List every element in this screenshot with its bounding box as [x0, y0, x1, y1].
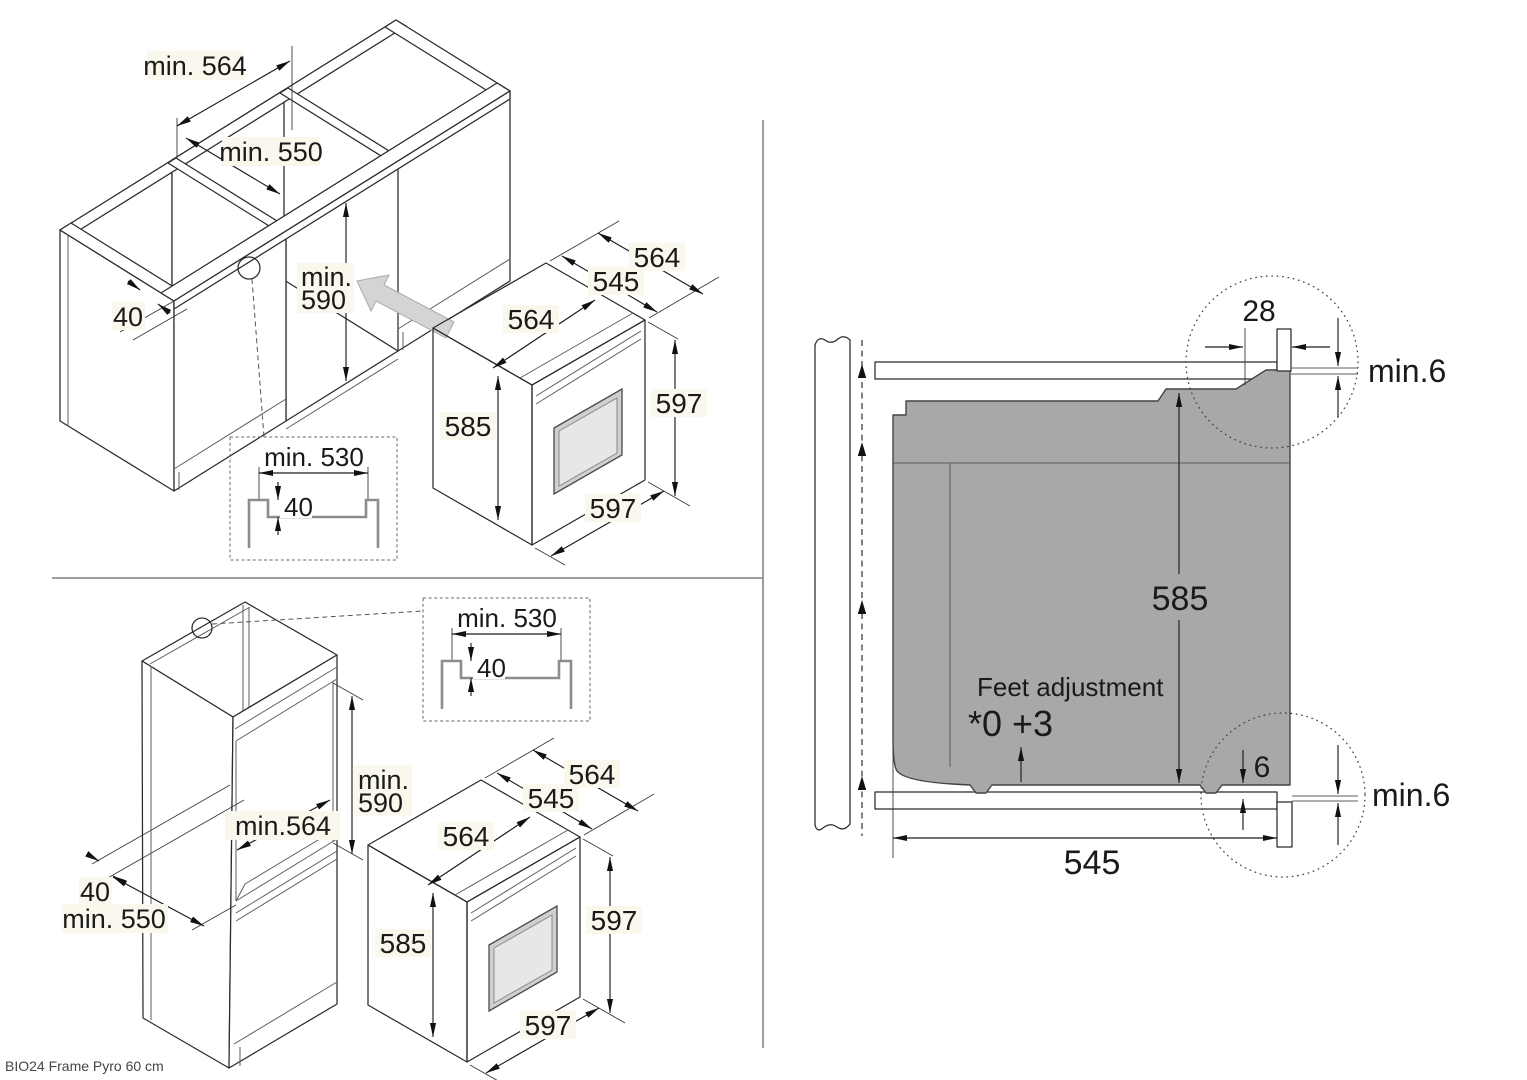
installation-diagram-page: 564 545 564 585 597 597 min. 530 40	[0, 0, 1527, 1080]
top-clearance-label: min.6	[1368, 353, 1446, 389]
model-caption: BIO24 Frame Pyro 60 cm	[5, 1058, 164, 1074]
niche-height-label: 590	[301, 285, 346, 315]
feet-adjustment-label: Feet adjustment	[977, 672, 1164, 702]
niche-height-label: 590	[358, 788, 403, 818]
niche-width-label: min. 564	[143, 51, 247, 81]
fascia-top-edge	[1277, 329, 1291, 371]
oven-installation-diagram: 564 545 564 585 597 597 min. 530 40	[0, 0, 1527, 1080]
top-recess-label: 28	[1242, 295, 1275, 328]
oven-body-section	[893, 370, 1290, 793]
shelf-panel	[875, 792, 1277, 809]
bottom-clearance-label: min.6	[1372, 777, 1450, 813]
fascia-bottom-edge	[1277, 802, 1292, 847]
niche-depth-label: min. 550	[62, 904, 166, 934]
side-cross-section-view: 28 min.6 585 Feet adjustment *0 +3 6 min…	[815, 276, 1450, 882]
front-rail-label: 40	[113, 302, 143, 332]
niche-depth-label: min. 550	[219, 137, 323, 167]
body-depth-label: 545	[1064, 844, 1121, 882]
left-cabinet-side	[60, 230, 174, 491]
body-height-label: 585	[1152, 580, 1209, 618]
front-rail-label: 40	[80, 877, 110, 907]
tall-cabinet-side	[142, 661, 233, 1068]
rear-wall	[815, 337, 850, 830]
niche-width-label: min.564	[235, 811, 331, 841]
bottom-offset-label: 6	[1254, 751, 1271, 784]
base-cabinet-installation-view: min. 564 min. 550 min. 590 40	[60, 20, 719, 565]
tall-cabinet-installation-view: min. 590 min.564 40 min. 550	[62, 598, 654, 1080]
feet-adjustment-values: *0 +3	[968, 703, 1053, 744]
worktop-panel	[875, 362, 1277, 379]
